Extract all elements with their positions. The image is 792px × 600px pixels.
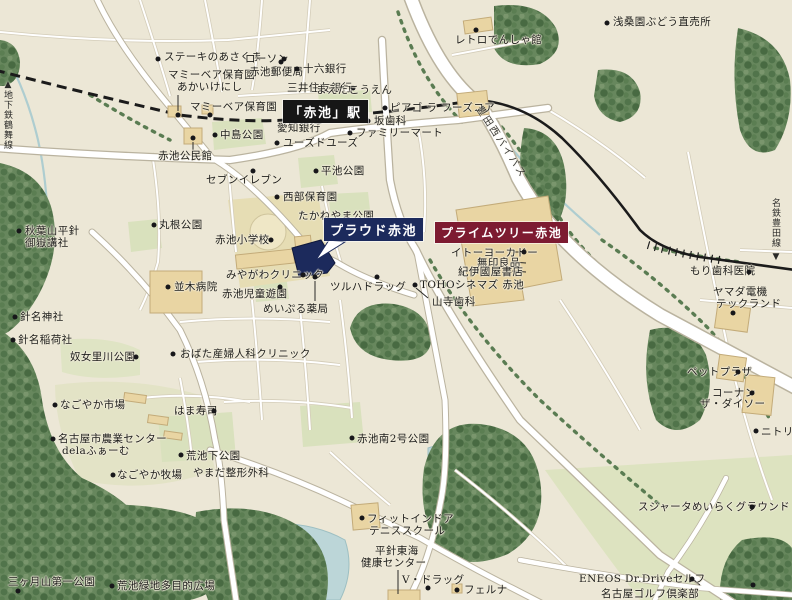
pet-plaza-building <box>716 354 746 382</box>
kenko-center-building <box>388 590 420 600</box>
fit-indoor-building <box>351 503 380 530</box>
piago-building <box>457 90 489 117</box>
hoikuen-building <box>168 106 181 117</box>
map-canvas <box>0 0 792 600</box>
akaike-area-map: ステーキのあさくまローソンマミーベア保育園あかいけにしマミーベア保育園赤池郵便局… <box>0 0 792 600</box>
hoikuen-building-2 <box>202 105 213 114</box>
kohnan-building <box>742 375 775 416</box>
kominkan-building <box>184 128 202 144</box>
yamada-denki-building <box>714 304 750 332</box>
namiki-hospital-building <box>150 271 202 313</box>
felna-building <box>452 584 462 593</box>
